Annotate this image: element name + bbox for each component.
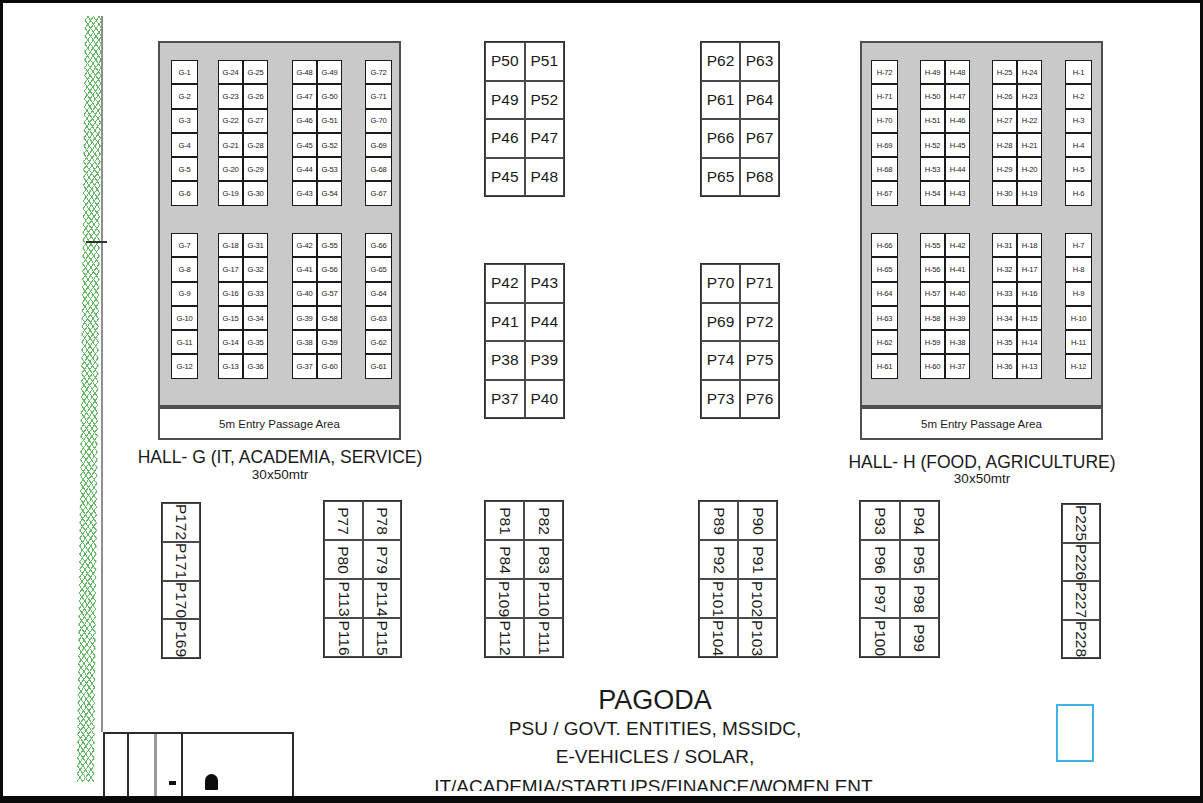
cell-label: H-59 — [925, 338, 941, 347]
cell-label: G-65 — [370, 265, 386, 274]
cell-label: H-9 — [1073, 289, 1085, 298]
booth-column: H-55H-42H-56H-41H-57H-40H-58H-39H-59H-38… — [920, 233, 970, 379]
booth-cell-h: H-45 — [945, 133, 970, 157]
stall-cell: P90 — [738, 501, 777, 540]
stall-cell: P92 — [699, 540, 738, 579]
booth-cell-h: H-15 — [1017, 306, 1042, 330]
booth-cell-g: G-15 — [218, 306, 243, 330]
booth-cell-g: G-24 — [218, 60, 243, 84]
cell-label: H-60 — [925, 362, 941, 371]
booth-column: G-72G-71G-70G-69G-68G-67 — [365, 60, 392, 206]
cell-label: P97 — [871, 585, 889, 613]
stall-cell: P51 — [525, 42, 565, 81]
cell-label: P94 — [910, 507, 928, 535]
hall-g-area: G-1G-2G-3G-4G-5G-6 G-24G-25G-23G-26G-22G… — [158, 41, 401, 407]
hall-h-title: HALL- H (FOOD, AGRICULTURE) — [827, 452, 1137, 473]
booth-cell-g: G-57 — [317, 282, 342, 306]
cell-label: P75 — [746, 351, 774, 369]
cell-label: P47 — [530, 129, 558, 147]
cell-label: H-7 — [1073, 241, 1085, 250]
stall-cell: P45 — [485, 158, 525, 197]
stall-cell: P62 — [701, 42, 740, 81]
structure-divider — [127, 734, 129, 803]
booth-cell-g: G-35 — [243, 330, 268, 354]
booth-cell-g: G-21 — [218, 133, 243, 157]
stall-cell: P67 — [740, 119, 779, 158]
cell-label: G-67 — [370, 189, 386, 198]
cell-label: P40 — [530, 390, 558, 408]
booth-cell-h: H-47 — [945, 84, 970, 108]
cell-label: H-33 — [997, 289, 1013, 298]
booth-cell-h: H-35 — [992, 330, 1017, 354]
booth-cell-h: H-18 — [1017, 233, 1042, 257]
booth-cell-h: H-41 — [945, 257, 970, 281]
stall-cell: P225 — [1062, 504, 1100, 543]
cell-label: H-17 — [1022, 265, 1038, 274]
cell-label: G-1 — [178, 68, 190, 77]
stall-cell: P78 — [363, 501, 402, 540]
booth-column: H-66H-65H-64H-63H-62H-61 — [871, 233, 898, 379]
hall-h-area: H-72H-71H-70H-69H-68H-67 H-49H-48H-50H-4… — [860, 41, 1103, 407]
stall-cell: P103 — [738, 618, 777, 657]
cell-label: G-40 — [296, 289, 312, 298]
booth-cell-g: G-64 — [365, 282, 392, 306]
booth-cell-h: H-51 — [920, 109, 945, 133]
cell-label: P116 — [334, 620, 352, 655]
cell-label: G-43 — [296, 189, 312, 198]
cell-label: H-68 — [877, 165, 893, 174]
booth-cell-g: G-67 — [365, 181, 392, 205]
stall-cell: P83 — [524, 540, 563, 579]
booth-cell-g: G-38 — [292, 330, 317, 354]
cell-label: P67 — [746, 129, 774, 147]
booth-cell-h: H-1 — [1065, 60, 1092, 84]
cell-label: P170 — [172, 582, 190, 618]
booth-cell-h: H-19 — [1017, 181, 1042, 205]
booth-cell-g: G-51 — [317, 109, 342, 133]
booth-cell-h: H-4 — [1065, 133, 1092, 157]
booth-cell-g: G-12 — [171, 354, 198, 378]
cell-label: G-45 — [296, 141, 312, 150]
cell-label: H-3 — [1073, 116, 1085, 125]
cell-label: H-63 — [877, 314, 893, 323]
cell-label: H-27 — [997, 116, 1013, 125]
stall-block-p169-p172: P172P171P170P169 — [161, 502, 201, 659]
booth-cell-g: G-19 — [218, 181, 243, 205]
cell-label: P80 — [334, 546, 352, 574]
booth-cell-h: H-36 — [992, 354, 1017, 378]
cell-label: H-6 — [1073, 189, 1085, 198]
structure-divider — [181, 734, 183, 803]
booth-cell-h: H-54 — [920, 181, 945, 205]
cell-label: G-66 — [370, 241, 386, 250]
stall-cell: P102 — [738, 579, 777, 618]
booth-cell-h: H-26 — [992, 84, 1017, 108]
cell-label: P50 — [491, 52, 519, 70]
stall-cell: P66 — [701, 119, 740, 158]
cell-label: G-17 — [222, 265, 238, 274]
cell-label: H-55 — [925, 241, 941, 250]
cell-label: H-70 — [877, 116, 893, 125]
stall-cell: P64 — [740, 81, 779, 120]
cell-label: G-19 — [222, 189, 238, 198]
booth-column: H-31H-18H-32H-17H-33H-16H-34H-15H-35H-14… — [992, 233, 1042, 379]
booth-cell-g: G-13 — [218, 354, 243, 378]
stall-cell: P68 — [740, 158, 779, 197]
cell-label: P100 — [871, 619, 889, 655]
booth-cell-h: H-6 — [1065, 181, 1092, 205]
cell-label: H-20 — [1022, 165, 1038, 174]
booth-cell-h: H-17 — [1017, 257, 1042, 281]
cell-label: P89 — [710, 507, 728, 535]
booth-cell-g: G-72 — [365, 60, 392, 84]
pagoda-title: PAGODA — [375, 686, 935, 715]
cell-label: H-42 — [950, 241, 966, 250]
cell-label: G-70 — [370, 116, 386, 125]
cell-label: G-30 — [247, 189, 263, 198]
cell-label: G-18 — [222, 241, 238, 250]
entry-passage-label: 5m Entry Passage Area — [219, 418, 340, 430]
cell-label: G-48 — [296, 68, 312, 77]
cell-label: H-45 — [950, 141, 966, 150]
booth-cell-h: H-61 — [871, 354, 898, 378]
cell-label: P101 — [709, 580, 727, 616]
cell-label: H-71 — [877, 92, 893, 101]
cell-label: H-24 — [1022, 68, 1038, 77]
booth-cell-h: H-8 — [1065, 257, 1092, 281]
cell-label: P81 — [496, 507, 514, 535]
cell-label: P65 — [707, 168, 735, 186]
stall-cell: P84 — [485, 540, 524, 579]
booth-cell-g: G-7 — [171, 233, 198, 257]
cell-label: P112 — [496, 620, 514, 655]
booth-cell-h: H-32 — [992, 257, 1017, 281]
booth-cell-g: G-20 — [218, 157, 243, 181]
stall-cell: P94 — [900, 501, 940, 540]
cell-label: P69 — [707, 313, 735, 331]
cell-label: H-49 — [925, 68, 941, 77]
booth-cell-g: G-69 — [365, 133, 392, 157]
booth-cell-g: G-23 — [218, 84, 243, 108]
blue-marker-rect — [1056, 704, 1094, 762]
cell-label: P46 — [491, 129, 519, 147]
cell-label: P90 — [749, 507, 767, 535]
cell-label: P70 — [707, 274, 735, 292]
cell-label: G-56 — [321, 265, 337, 274]
booth-cell-h: H-2 — [1065, 84, 1092, 108]
stall-cell: P172 — [162, 503, 200, 542]
booth-column: H-1H-2H-3H-4H-5H-6 — [1065, 60, 1092, 206]
stall-cell: P47 — [525, 119, 565, 158]
stall-cell: P89 — [699, 501, 738, 540]
stall-block-p225-p228: P225P226P227P228 — [1061, 503, 1101, 659]
booth-cell-h: H-67 — [871, 181, 898, 205]
cell-label: H-2 — [1073, 92, 1085, 101]
stall-cell: P75 — [740, 341, 779, 380]
cell-label: H-10 — [1071, 314, 1087, 323]
stall-cell: P170 — [162, 581, 200, 620]
cell-label: H-56 — [925, 265, 941, 274]
cell-label: H-5 — [1073, 165, 1085, 174]
cell-label: P110 — [535, 581, 553, 616]
cell-label: G-60 — [321, 362, 337, 371]
stall-cell: P43 — [525, 264, 565, 303]
stall-cell: P44 — [525, 303, 565, 342]
booth-cell-g: G-4 — [171, 133, 198, 157]
booth-cell-h: H-5 — [1065, 157, 1092, 181]
cell-label: H-47 — [950, 92, 966, 101]
cell-label: G-35 — [247, 338, 263, 347]
cell-label: G-37 — [296, 362, 312, 371]
cell-label: P172 — [172, 504, 190, 540]
booth-cell-h: H-58 — [920, 306, 945, 330]
stall-cell: P71 — [740, 264, 779, 303]
cell-label: G-11 — [177, 338, 193, 347]
cell-label: P62 — [707, 52, 735, 70]
stall-cell: P52 — [525, 81, 565, 120]
booth-cell-h: H-57 — [920, 282, 945, 306]
cell-label: P41 — [491, 313, 519, 331]
cell-label: P52 — [530, 91, 558, 109]
cell-label: G-58 — [321, 314, 337, 323]
hall-h-size: 30x50mtr — [827, 471, 1137, 486]
stall-cell: P227 — [1062, 581, 1100, 620]
stall-cell: P73 — [701, 380, 740, 419]
cell-label: P169 — [172, 621, 190, 657]
cell-label: H-67 — [877, 189, 893, 198]
stall-cell: P99 — [900, 618, 940, 657]
stall-block-p45-p52: P50P51P49P52P46P47P45P48 — [484, 41, 565, 197]
cell-label: G-32 — [247, 265, 263, 274]
booth-cell-g: G-27 — [243, 109, 268, 133]
cell-label: H-26 — [997, 92, 1013, 101]
cell-label: P45 — [491, 168, 519, 186]
cell-label: H-40 — [950, 289, 966, 298]
cell-label: P43 — [530, 274, 558, 292]
booth-cell-g: G-6 — [171, 181, 198, 205]
booth-column: H-49H-48H-50H-47H-51H-46H-52H-45H-53H-44… — [920, 60, 970, 206]
booth-cell-h: H-59 — [920, 330, 945, 354]
cell-label: H-65 — [877, 265, 893, 274]
cell-label: P37 — [491, 390, 519, 408]
cell-label: G-4 — [178, 141, 190, 150]
stall-block-p77-p116: P77P78P80P79P113P114P116P115 — [323, 500, 402, 658]
booth-cell-g: G-8 — [171, 257, 198, 281]
booth-cell-h: H-29 — [992, 157, 1017, 181]
stall-cell: P63 — [740, 42, 779, 81]
cell-label: G-46 — [296, 116, 312, 125]
cell-label: G-72 — [370, 68, 386, 77]
booth-cell-g: G-66 — [365, 233, 392, 257]
cell-label: H-48 — [950, 68, 966, 77]
cell-label: H-15 — [1022, 314, 1038, 323]
booth-cell-g: G-70 — [365, 109, 392, 133]
cell-label: G-24 — [222, 68, 238, 77]
cell-label: H-12 — [1071, 362, 1087, 371]
booth-cell-h: H-7 — [1065, 233, 1092, 257]
cell-label: H-22 — [1022, 116, 1038, 125]
booth-cell-h: H-68 — [871, 157, 898, 181]
cell-label: H-52 — [925, 141, 941, 150]
booth-cell-h: H-44 — [945, 157, 970, 181]
cell-label: P111 — [535, 621, 553, 655]
booth-cell-g: G-16 — [218, 282, 243, 306]
booth-cell-g: G-29 — [243, 157, 268, 181]
stall-cell: P48 — [525, 158, 565, 197]
cell-label: H-28 — [997, 141, 1013, 150]
cell-label: P64 — [746, 91, 774, 109]
booth-cell-g: G-28 — [243, 133, 268, 157]
stall-cell: P171 — [162, 542, 200, 581]
cell-label: H-72 — [877, 68, 893, 77]
booth-cell-g: G-44 — [292, 157, 317, 181]
cell-label: P92 — [710, 546, 728, 574]
stall-cell: P65 — [701, 158, 740, 197]
cell-label: H-57 — [925, 289, 941, 298]
cell-label: P51 — [530, 52, 558, 70]
stall-cell: P82 — [524, 501, 563, 540]
booth-cell-h: H-63 — [871, 306, 898, 330]
cell-label: P114 — [373, 581, 391, 616]
cell-label: G-14 — [222, 338, 238, 347]
booth-cell-g: G-60 — [317, 354, 342, 378]
cell-label: G-39 — [296, 314, 312, 323]
stall-cell: P100 — [860, 618, 900, 657]
cell-label: H-16 — [1022, 289, 1038, 298]
booth-cell-g: G-32 — [243, 257, 268, 281]
booth-cell-g: G-39 — [292, 306, 317, 330]
cell-label: P76 — [746, 390, 774, 408]
booth-column: G-66G-65G-64G-63G-62G-61 — [365, 233, 392, 379]
cell-label: H-35 — [997, 338, 1013, 347]
booth-cell-h: H-22 — [1017, 109, 1042, 133]
booth-cell-g: G-52 — [317, 133, 342, 157]
cell-label: P77 — [334, 507, 352, 535]
survey-tick — [86, 241, 107, 243]
stall-cell: P40 — [525, 380, 565, 419]
cell-label: G-28 — [247, 141, 263, 150]
booth-cell-g: G-43 — [292, 181, 317, 205]
booth-cell-h: H-10 — [1065, 306, 1092, 330]
stall-block-p89-p104: P89P90P92P91P101P102P104P103 — [698, 500, 778, 658]
stall-cell: P49 — [485, 81, 525, 120]
stall-cell: P91 — [738, 540, 777, 579]
cell-label: G-12 — [176, 362, 192, 371]
cell-label: H-46 — [950, 116, 966, 125]
booth-column: G-24G-25G-23G-26G-22G-27G-21G-28G-20G-29… — [218, 60, 268, 206]
stall-cell: P69 — [701, 303, 740, 342]
stall-cell: P77 — [324, 501, 363, 540]
cell-label: G-68 — [370, 165, 386, 174]
cell-label: G-6 — [178, 189, 190, 198]
cell-label: P96 — [871, 546, 889, 574]
stall-cell: P37 — [485, 380, 525, 419]
booth-cell-h: H-46 — [945, 109, 970, 133]
booth-cell-g: G-59 — [317, 330, 342, 354]
booth-cell-g: G-1 — [171, 60, 198, 84]
cell-label: G-33 — [247, 289, 263, 298]
cell-label: P74 — [707, 351, 735, 369]
booth-cell-h: H-13 — [1017, 354, 1042, 378]
booth-cell-h: H-39 — [945, 306, 970, 330]
booth-column: G-7G-8G-9G-10G-11G-12 — [171, 233, 198, 379]
stall-cell: P61 — [701, 81, 740, 120]
booth-cell-g: G-53 — [317, 157, 342, 181]
booth-cell-h: H-38 — [945, 330, 970, 354]
cell-label: P48 — [530, 168, 558, 186]
booth-cell-g: G-25 — [243, 60, 268, 84]
booth-column: G-42G-55G-41G-56G-40G-57G-39G-58G-38G-59… — [292, 233, 342, 379]
cell-label: P79 — [373, 546, 391, 574]
cell-label: G-16 — [222, 289, 238, 298]
booth-cell-h: H-52 — [920, 133, 945, 157]
cell-label: G-62 — [370, 338, 386, 347]
booth-cell-g: G-22 — [218, 109, 243, 133]
cell-label: G-26 — [247, 92, 263, 101]
cell-label: G-51 — [321, 116, 337, 125]
cell-label: H-66 — [877, 241, 893, 250]
booth-cell-g: G-42 — [292, 233, 317, 257]
cell-label: H-13 — [1022, 362, 1038, 371]
boundary-line — [101, 16, 103, 732]
cell-label: G-49 — [321, 68, 337, 77]
stall-cell: P97 — [860, 579, 900, 618]
booth-cell-g: G-61 — [365, 354, 392, 378]
bottom-structure — [103, 732, 294, 803]
cell-label: G-69 — [370, 141, 386, 150]
booth-cell-g: G-37 — [292, 354, 317, 378]
booth-cell-g: G-30 — [243, 181, 268, 205]
stall-cell: P169 — [162, 619, 200, 658]
stall-cell: P226 — [1062, 543, 1100, 582]
cell-label: H-31 — [997, 241, 1013, 250]
cell-label: H-29 — [997, 165, 1013, 174]
entry-passage-hall-g: 5m Entry Passage Area — [158, 407, 401, 440]
cell-label: H-30 — [997, 189, 1013, 198]
cell-label: P38 — [491, 351, 519, 369]
cell-label: H-8 — [1073, 265, 1085, 274]
booth-cell-h: H-28 — [992, 133, 1017, 157]
booth-cell-h: H-37 — [945, 354, 970, 378]
booth-column: H-72H-71H-70H-69H-68H-67 — [871, 60, 898, 206]
floor-plan-canvas: G-1G-2G-3G-4G-5G-6 G-24G-25G-23G-26G-22G… — [0, 0, 1203, 803]
booth-cell-h: H-40 — [945, 282, 970, 306]
booth-cell-g: G-49 — [317, 60, 342, 84]
booth-cell-h: H-12 — [1065, 354, 1092, 378]
stall-cell: P116 — [324, 618, 363, 657]
cell-label: P103 — [748, 619, 766, 655]
booth-cell-g: G-11 — [171, 330, 198, 354]
booth-cell-h: H-65 — [871, 257, 898, 281]
cell-label: H-44 — [950, 165, 966, 174]
booth-cell-h: H-27 — [992, 109, 1017, 133]
cell-label: P42 — [491, 274, 519, 292]
cell-label: H-18 — [1022, 241, 1038, 250]
cell-label: P82 — [535, 507, 553, 535]
booth-cell-h: H-34 — [992, 306, 1017, 330]
cell-label: P44 — [530, 313, 558, 331]
booth-cell-h: H-24 — [1017, 60, 1042, 84]
stall-cell: P79 — [363, 540, 402, 579]
booth-cell-g: G-48 — [292, 60, 317, 84]
booth-column: H-7H-8H-9H-10H-11H-12 — [1065, 233, 1092, 379]
booth-column: G-48G-49G-47G-50G-46G-51G-45G-52G-44G-53… — [292, 60, 342, 206]
stall-cell: P109 — [485, 579, 524, 618]
booth-cell-h: H-30 — [992, 181, 1017, 205]
cell-label: H-53 — [925, 165, 941, 174]
booth-cell-h: H-43 — [945, 181, 970, 205]
booth-cell-h: H-50 — [920, 84, 945, 108]
